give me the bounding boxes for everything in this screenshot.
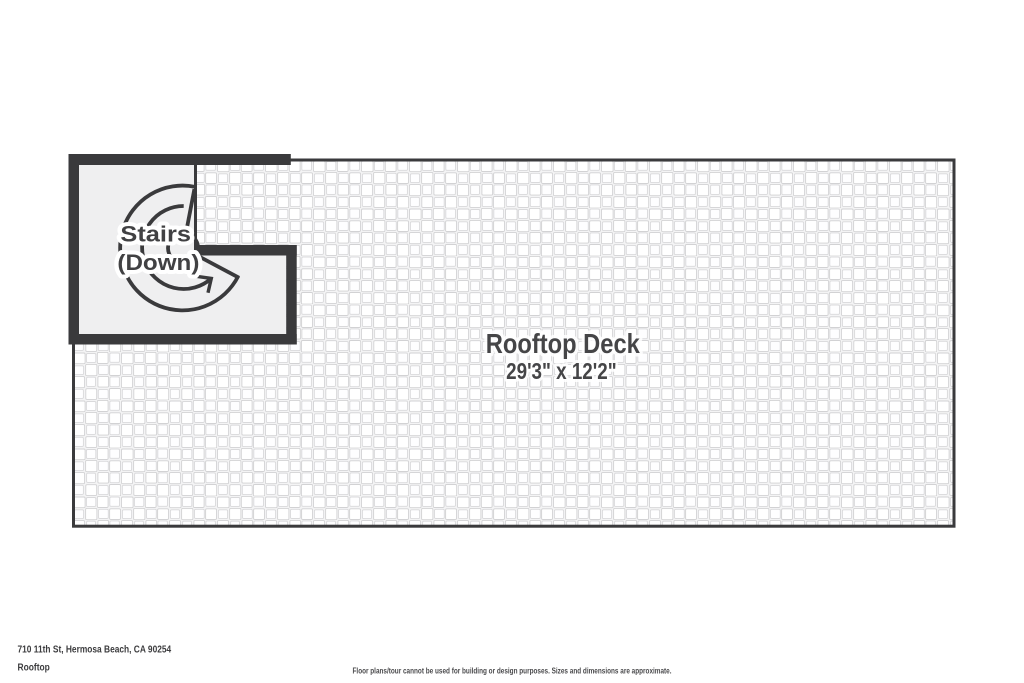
svg-text:Rooftop Deck: Rooftop Deck — [486, 328, 640, 359]
svg-text:Stairs: Stairs — [120, 222, 191, 247]
svg-text:710 11th St, Hermosa Beach, CA: 710 11th St, Hermosa Beach, CA 90254 — [18, 645, 172, 656]
svg-text:29'3" x 12'2": 29'3" x 12'2" — [506, 358, 617, 384]
svg-text:Rooftop: Rooftop — [18, 663, 50, 674]
svg-text:Floor plans/tour cannot be use: Floor plans/tour cannot be used for buil… — [353, 666, 672, 676]
svg-text:(Down): (Down) — [117, 250, 199, 275]
